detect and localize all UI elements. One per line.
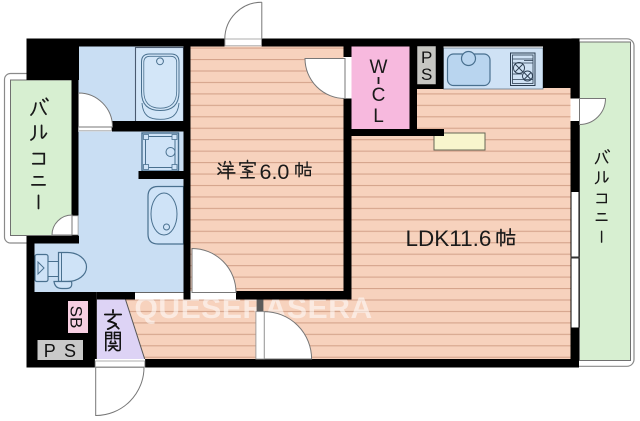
svg-text:W: W — [370, 57, 388, 78]
svg-text:LDK11.6: LDK11.6 — [406, 226, 492, 251]
svg-text:P: P — [44, 341, 56, 361]
svg-text:C: C — [372, 85, 386, 106]
svg-text:S: S — [64, 341, 76, 361]
svg-text:SB: SB — [67, 306, 86, 329]
svg-text:6.0: 6.0 — [260, 160, 290, 184]
svg-text:L: L — [373, 106, 384, 127]
svg-text:S: S — [421, 65, 432, 84]
